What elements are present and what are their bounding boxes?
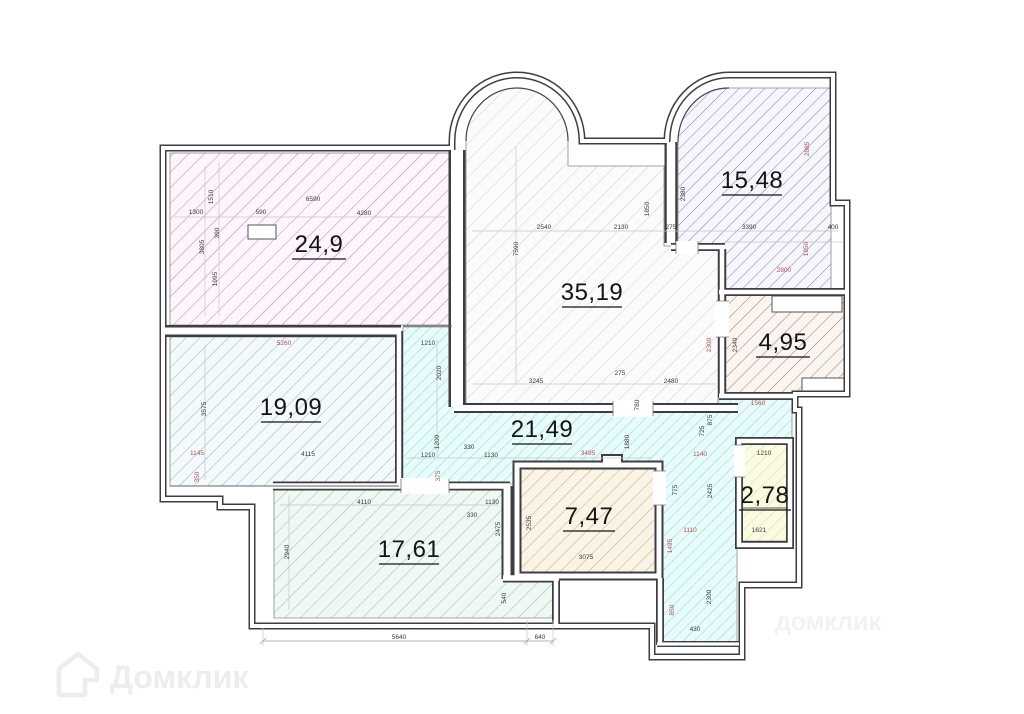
area-label-24-9: 24,9	[295, 231, 344, 258]
area-label-21-49: 21,49	[511, 416, 574, 443]
dim-label: 2475	[495, 521, 502, 536]
door-gap	[676, 241, 698, 254]
dim-label: 2020	[436, 365, 443, 380]
dim-label: 2380	[680, 186, 687, 201]
dim-label: 1510	[208, 189, 215, 204]
dim-label: 1140	[693, 451, 707, 458]
dim-label: 330	[464, 444, 475, 451]
dim-label: 3495	[581, 450, 596, 457]
dim-label: 590	[256, 209, 267, 216]
dim-label: 4280	[357, 210, 372, 217]
dim-label: 2885	[804, 141, 811, 156]
dim-label: 1210	[757, 450, 772, 457]
dim-label: 275	[615, 370, 626, 377]
dim-label: 2425	[707, 483, 714, 498]
dim-label: 2300	[706, 337, 713, 352]
dim-label: 640	[535, 634, 546, 641]
dim-label: 3805	[199, 239, 206, 254]
dim-label: 1495	[667, 538, 674, 553]
dim-label: 1850	[644, 201, 651, 216]
brand-watermark-text: Домклик	[110, 659, 249, 695]
dim-label: 4110	[357, 499, 371, 506]
wall-core	[603, 456, 621, 464]
dim-label: 1130	[484, 452, 498, 459]
dim-label: 430	[690, 626, 701, 633]
dim-label: 1110	[683, 527, 697, 534]
dim-label: 7590	[513, 241, 520, 256]
dim-label: 1950	[803, 241, 810, 256]
dim-label: 330	[467, 512, 478, 519]
dim-label: 1210	[421, 452, 436, 459]
dim-label: 5260	[277, 340, 292, 347]
dim-label: 390	[214, 227, 221, 238]
dim-label: 2300	[706, 589, 713, 604]
door-gap	[734, 445, 745, 477]
dim-label: 2940	[284, 544, 291, 559]
dim-label: 780	[634, 399, 641, 410]
dim-label: 5640	[392, 634, 407, 641]
wall-niche	[248, 225, 276, 239]
dim-label: 1130	[485, 499, 499, 506]
dim-label: 375	[435, 470, 442, 481]
area-label-4-95: 4,95	[759, 329, 808, 356]
dim-label: 775	[672, 484, 679, 495]
area-label-15-48: 15,48	[721, 167, 784, 194]
door-gap	[613, 400, 653, 417]
dim-label: 2340	[732, 337, 739, 352]
dim-label: 275	[666, 224, 677, 231]
dim-label: 2800	[777, 267, 792, 274]
floor-plan-drawing: 1300 1510 590 6590 4280 390 3805 1995 52…	[0, 0, 1024, 714]
dim-label: 725	[699, 425, 706, 436]
dim-label: 875	[707, 414, 714, 425]
area-label-17-61: 17,61	[378, 536, 441, 563]
dim-label: 1145	[190, 450, 204, 457]
dim-label: 1200	[434, 434, 441, 449]
house-icon	[59, 654, 97, 695]
area-label-7-47: 7,47	[565, 503, 614, 530]
dim-label: 1880	[624, 434, 631, 449]
dim-label: 4115	[301, 451, 315, 458]
dim-label: 2535	[526, 515, 533, 530]
dim-label: 3575	[201, 401, 208, 416]
area-label-19-09: 19,09	[260, 394, 323, 421]
floor-plan-page: 1300 1510 590 6590 4280 390 3805 1995 52…	[0, 0, 1024, 714]
dim-label: 2130	[614, 224, 629, 231]
dim-label: 350	[194, 471, 201, 482]
area-label-2-78: 2,78	[741, 482, 790, 509]
door-gap	[715, 301, 729, 337]
dim-label: 3390	[742, 224, 757, 231]
dim-label: 850	[669, 604, 676, 615]
watermark: Домклик домклик	[59, 608, 881, 695]
dim-label: 2480	[664, 378, 679, 385]
dim-label: 6590	[306, 196, 321, 203]
dim-label: 1995	[212, 271, 219, 286]
dim-label: 3075	[579, 554, 594, 561]
dim-label: 3245	[529, 378, 544, 385]
area-label-35-19: 35,19	[561, 279, 624, 306]
brand-logo-icon	[59, 654, 97, 695]
dim-label: 1560	[751, 400, 766, 407]
dim-label: 1210	[421, 340, 436, 347]
dim-label: 540	[501, 592, 508, 603]
door-gap	[653, 471, 666, 505]
duct-top	[772, 296, 842, 312]
dim-label: 1621	[752, 527, 767, 534]
dim-label: 400	[828, 224, 839, 231]
faint-watermark-text: домклик	[775, 608, 881, 636]
dim-label: 2540	[537, 224, 552, 231]
dim-label: 1300	[189, 209, 204, 216]
